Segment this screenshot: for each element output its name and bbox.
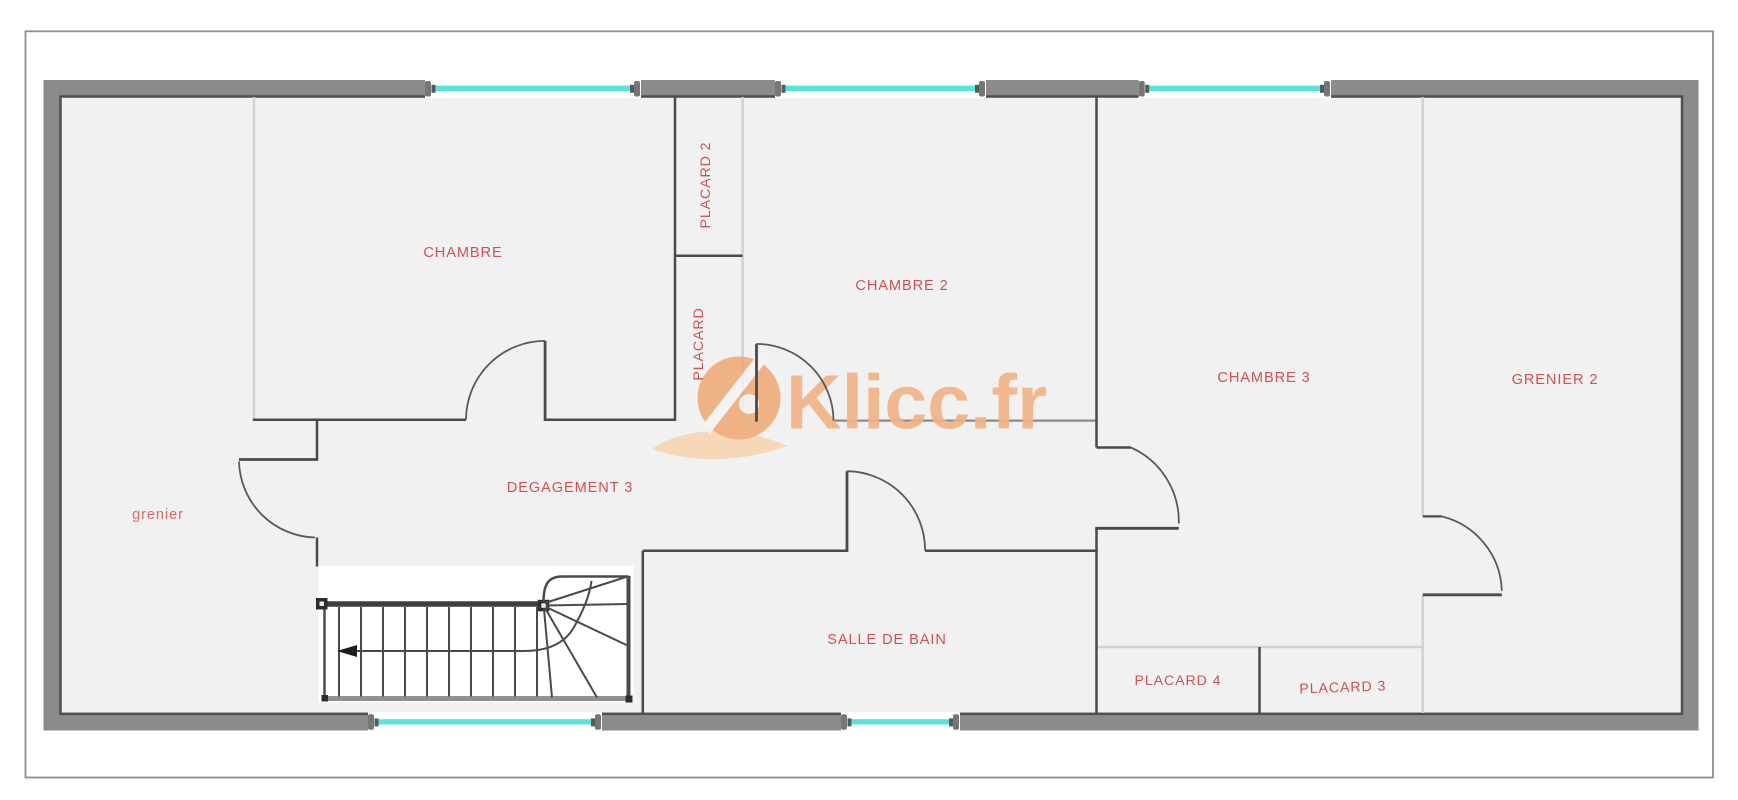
svg-text:PLACARD 2: PLACARD 2: [698, 142, 714, 229]
svg-text:grenier: grenier: [132, 507, 184, 523]
svg-text:PLACARD 3: PLACARD 3: [1299, 678, 1386, 697]
svg-text:PLACARD: PLACARD: [691, 307, 707, 380]
svg-text:GRENIER 2: GRENIER 2: [1512, 372, 1599, 388]
svg-text:SALLE DE BAIN: SALLE DE BAIN: [827, 632, 947, 648]
svg-text:PLACARD 4: PLACARD 4: [1135, 673, 1222, 689]
svg-text:Klicc.fr: Klicc.fr: [786, 360, 1047, 446]
svg-text:CHAMBRE 2: CHAMBRE 2: [855, 278, 948, 294]
svg-text:DEGAGEMENT 3: DEGAGEMENT 3: [507, 480, 634, 496]
svg-text:CHAMBRE 3: CHAMBRE 3: [1217, 370, 1310, 386]
svg-text:CHAMBRE: CHAMBRE: [423, 245, 502, 261]
